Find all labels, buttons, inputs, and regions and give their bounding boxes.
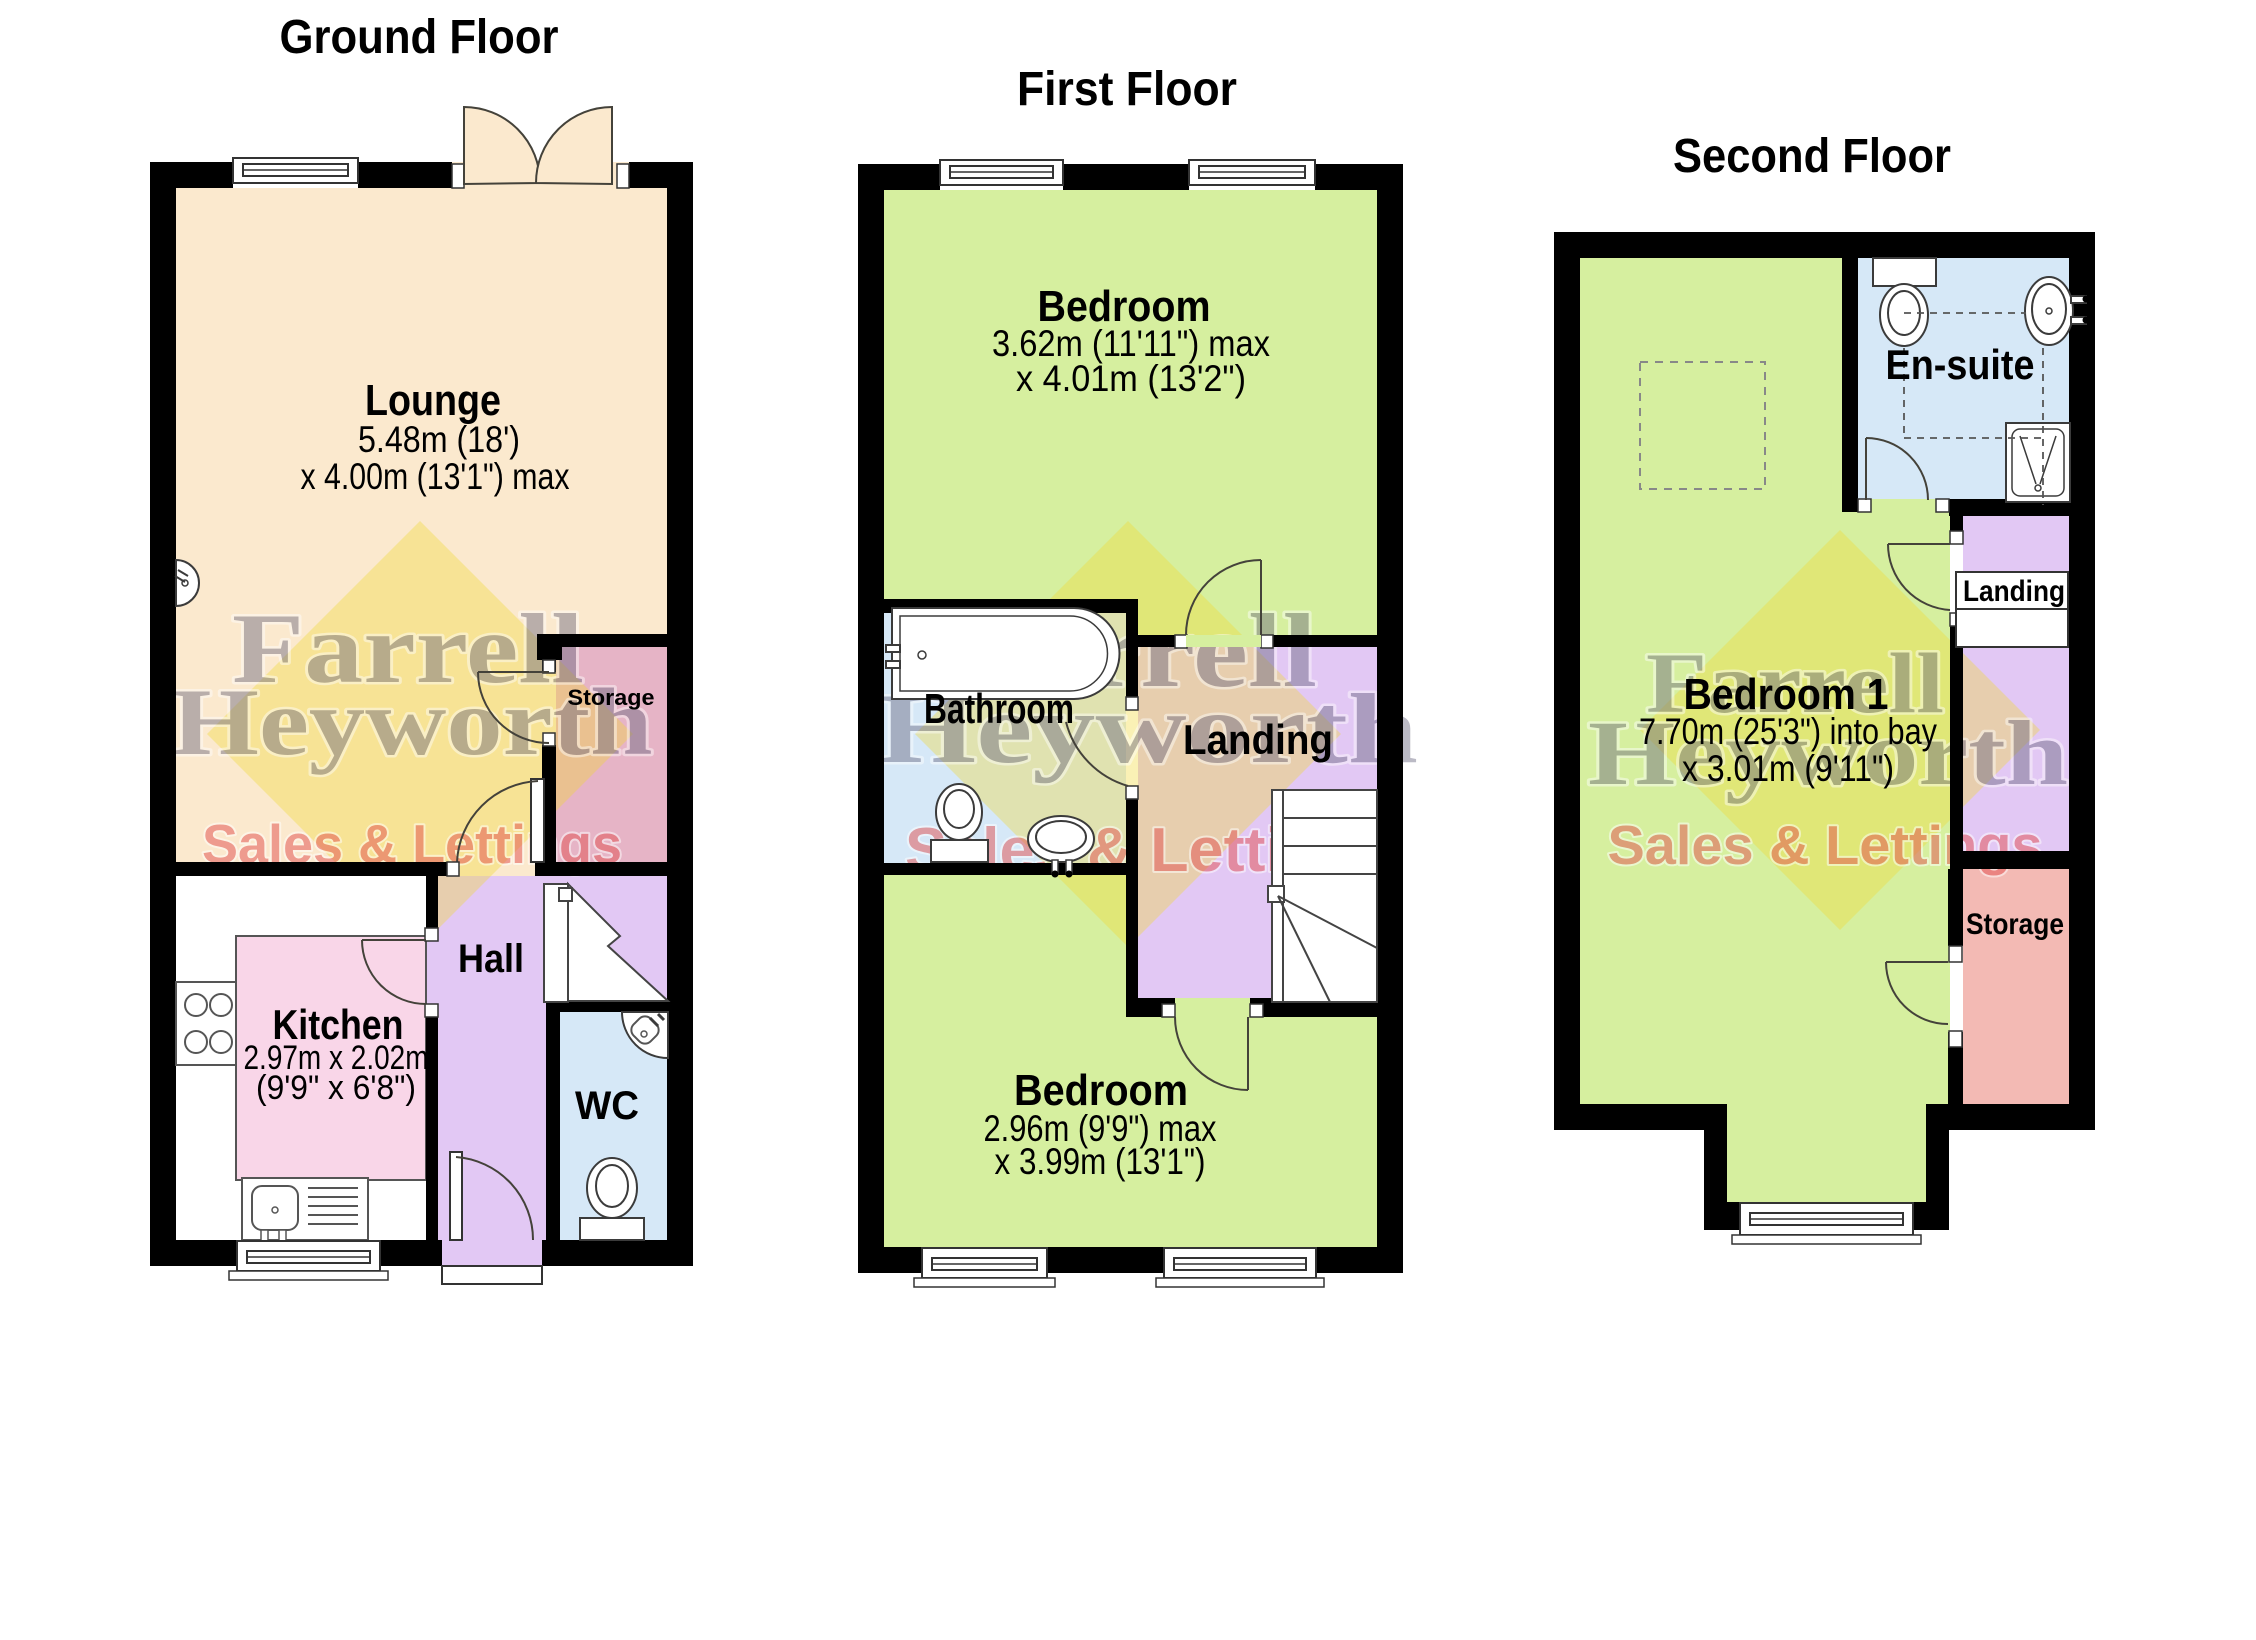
svg-text:Ground Floor: Ground Floor (280, 11, 559, 64)
svg-text:Hall: Hall (458, 937, 524, 981)
svg-text:Landing: Landing (1183, 716, 1333, 763)
svg-text:First Floor: First Floor (1017, 63, 1237, 116)
svg-text:x 3.01m (9'11"): x 3.01m (9'11") (1682, 748, 1894, 789)
svg-text:x 4.01m (13'2"): x 4.01m (13'2") (1016, 358, 1246, 399)
svg-text:WC: WC (575, 1084, 639, 1128)
svg-text:(9'9" x 6'8"): (9'9" x 6'8") (256, 1069, 416, 1107)
svg-text:Second Floor: Second Floor (1673, 130, 1951, 183)
svg-text:x 4.00m (13'1") max: x 4.00m (13'1") max (301, 456, 570, 497)
svg-text:Landing: Landing (1963, 575, 2065, 608)
svg-text:Storage: Storage (568, 685, 655, 710)
svg-text:Storage: Storage (1966, 908, 2064, 941)
svg-text:x 3.99m (13'1"): x 3.99m (13'1") (995, 1141, 1206, 1182)
svg-text:Lounge: Lounge (365, 376, 501, 425)
svg-text:7.70m (25'3") into bay: 7.70m (25'3") into bay (1639, 711, 1937, 752)
svg-text:En-suite: En-suite (1886, 341, 2035, 388)
svg-text:Bathroom: Bathroom (924, 685, 1074, 732)
svg-text:5.48m (18'): 5.48m (18') (358, 419, 520, 460)
